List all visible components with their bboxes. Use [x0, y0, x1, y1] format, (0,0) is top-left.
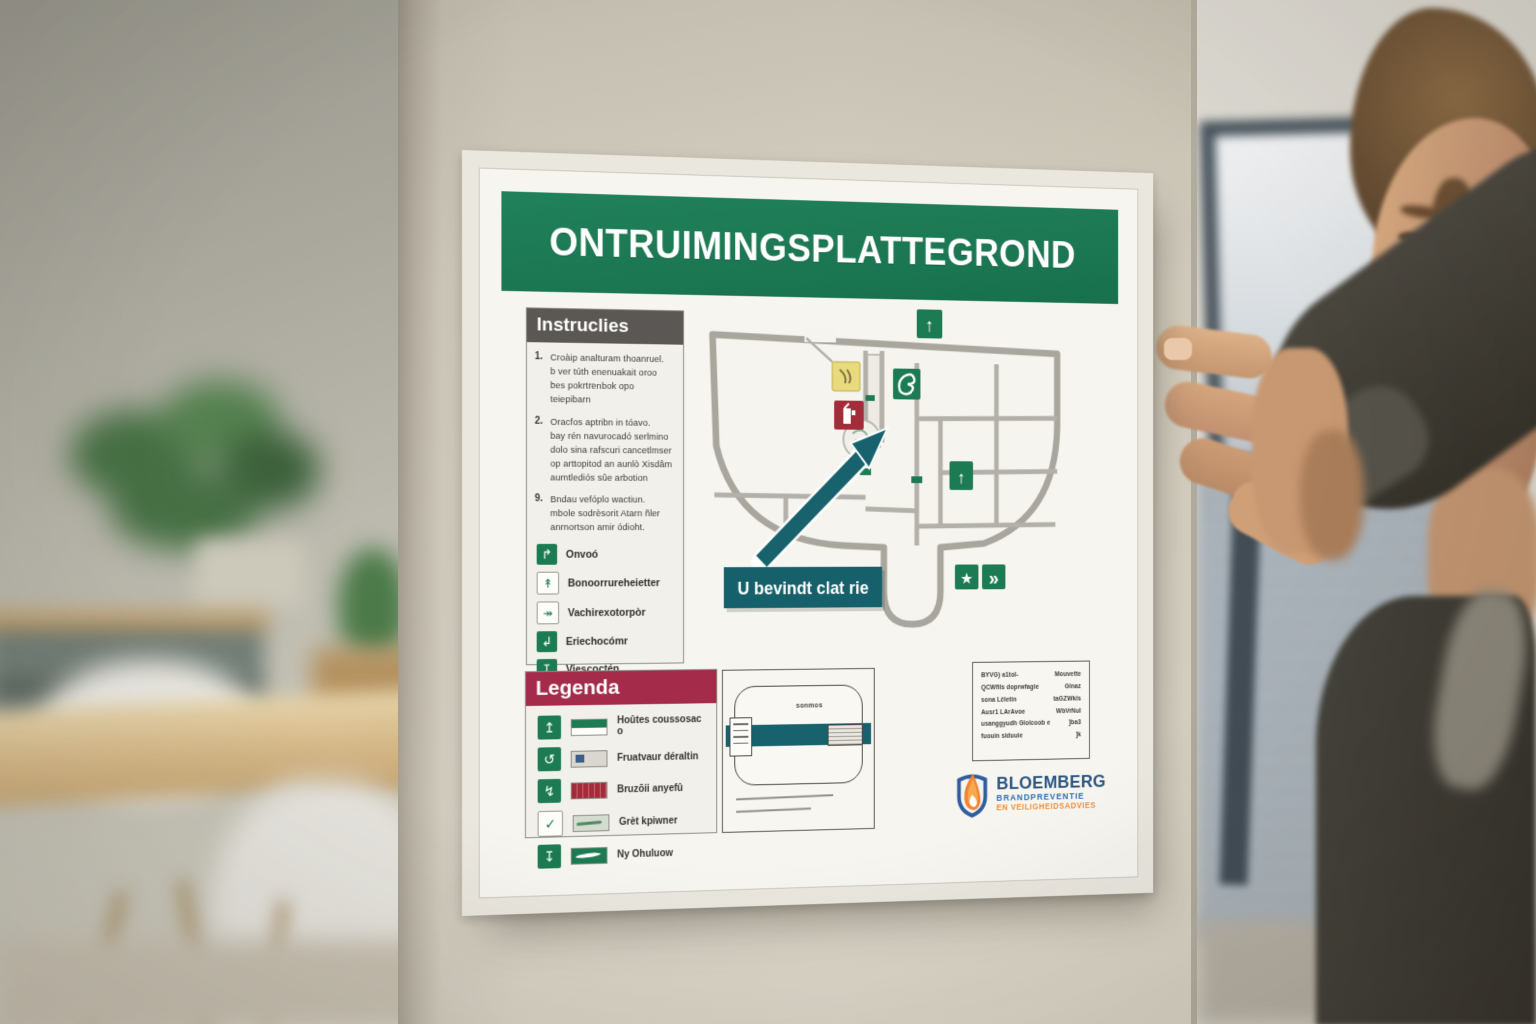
company-logo: BLOEMBERG BRANDPREVENTIE EN VEILIGHEIDSA…	[954, 762, 1106, 823]
legend-panel: Legenda ↥ Hoûtes coussosac o ↺ Fruatvaur…	[525, 669, 717, 838]
svg-text:↑: ↑	[925, 316, 934, 336]
evacuation-poster-frame: ONTRUIMINGSPLATTEGROND Instruclies 1. Cr…	[462, 150, 1153, 916]
wrist-shadow	[1300, 430, 1364, 560]
logo-text: BLOEMBERG BRANDPREVENTIE EN VEILIGHEIDSA…	[996, 772, 1105, 812]
instruction-item: 2. Oracfos aptribn in tóavo. bay rén nav…	[535, 416, 676, 486]
instruction-text: Croàip analturam thoanruel. b ver túth e…	[550, 351, 675, 408]
instructions-header: Instruclies	[527, 308, 683, 344]
legend-bar-icon	[571, 846, 608, 864]
you-are-here-label: U bevindt clat rie	[738, 578, 869, 598]
legend-row: ↧ Ny Ohuluow	[538, 840, 709, 869]
fingernail	[1164, 338, 1192, 360]
svg-text:↑: ↑	[957, 468, 965, 487]
poster-title-banner: ONTRUIMINGSPLATTEGROND	[501, 191, 1118, 304]
route-sign-icon: ↠	[537, 602, 559, 625]
legend-row: ✓ Grèt kpiwner	[538, 807, 709, 837]
legend-row: ↯ Bruzōii anyefû	[538, 776, 709, 804]
warning-sign-icon	[832, 362, 860, 391]
route-marker	[911, 476, 922, 483]
info-row: Ausr1 LArAvoe WbVrNul	[981, 706, 1081, 720]
assembly-sign-icon: ↟	[537, 572, 559, 595]
instruction-text: Bndau vefóplo wactiun. mbole sodrèsorit …	[550, 494, 660, 535]
instruction-item: 9. Bndau vefóplo wactiun. mbole sodrèsor…	[535, 494, 676, 536]
exit-sign-icon: ↑	[950, 461, 974, 490]
escape-route-sign-icon: ↥	[538, 715, 561, 739]
logo-line3: EN VEILIGHEIDSADVIES	[996, 801, 1105, 812]
legend-bar-icon	[571, 750, 608, 768]
chevrons-sign-icon: »	[982, 564, 1005, 589]
instructions-panel: Instruclies 1. Croàip analturam thoanrue…	[526, 307, 684, 665]
exit-left-sign-icon: ↲	[537, 631, 557, 652]
picto-row: ↠ Vachirexotorpòr	[537, 601, 683, 625]
legend-bar-icon	[573, 814, 610, 832]
svg-text:★: ★	[960, 571, 973, 587]
floor	[0, 940, 430, 1024]
picto-row: ↱ Onvoó	[537, 544, 683, 565]
instruction-number: 2.	[535, 416, 551, 485]
assembly-star-sign-icon: ★	[955, 565, 978, 590]
legend-row: ↥ Hoûtes coussosac o	[538, 713, 709, 740]
inset-diagram: sonmos	[722, 668, 875, 833]
instruction-number: 1.	[535, 351, 551, 407]
evacuation-poster: ONTRUIMINGSPLATTEGROND Instruclies 1. Cr…	[479, 168, 1138, 899]
picto-row: ↟ Bonoorrureheietter	[537, 571, 683, 594]
poster-title: ONTRUIMINGSPLATTEGROND	[549, 220, 1076, 277]
logo-name: BLOEMBERG	[996, 772, 1105, 793]
exit-sign-icon: ↱	[537, 544, 557, 565]
plant-pot	[195, 540, 305, 610]
route-marker	[866, 395, 875, 401]
first-aid-sign-icon: ✓	[538, 811, 563, 837]
inset-caption-line	[736, 794, 833, 800]
instruction-item: 1. Croàip analturam thoanruel. b ver tút…	[535, 351, 676, 408]
legend-rows: ↥ Hoûtes coussosac o ↺ Fruatvaur déralti…	[526, 703, 716, 869]
office-background	[0, 0, 430, 1024]
instructions-list: 1. Croàip analturam thoanruel. b ver tút…	[527, 342, 683, 535]
assembly-point-sign-icon: ↺	[538, 747, 561, 771]
legend-header: Legenda	[526, 670, 716, 706]
legend-bar-icon	[571, 718, 608, 735]
legend-bar-icon	[571, 781, 608, 799]
first-aid-sign-icon	[893, 368, 920, 399]
inset-right-label	[828, 724, 863, 746]
instruction-number: 9.	[535, 494, 551, 536]
picto-row: ↲ Eriechocómr	[537, 630, 683, 652]
inset-caption-line	[736, 808, 811, 813]
legend-row: ↺ Fruatvaur déraltin	[538, 744, 709, 771]
info-row: fuouin siduuie ]k	[981, 730, 1081, 744]
info-box: BYVG) a1tol- Mouvette QCWfils doprwfagie…	[972, 661, 1090, 762]
svg-text:»: »	[989, 568, 999, 589]
exit-sign-icon: ↧	[538, 844, 561, 868]
floor-plan: ↑ ↑ U bevindt clat rie ★	[692, 299, 1086, 640]
inset-caption: sonmos	[796, 702, 823, 709]
inset-left-label	[730, 717, 753, 756]
flame-shield-icon	[954, 768, 990, 820]
exit-sign-icon: ↑	[917, 309, 942, 338]
office-photo-scene: ONTRUIMINGSPLATTEGROND Instruclies 1. Cr…	[0, 0, 1536, 1024]
instruction-text: Oracfos aptribn in tóavo. bay rén navuro…	[550, 416, 672, 486]
fire-extinguisher-sign-icon	[834, 400, 864, 429]
fire-alarm-sign-icon: ↯	[538, 779, 561, 803]
